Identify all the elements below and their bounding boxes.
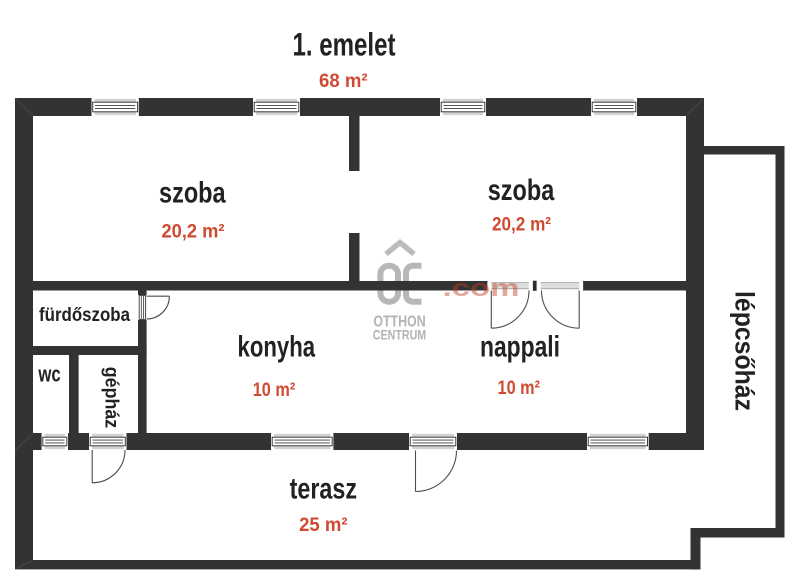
svg-text:1. emelet: 1. emelet — [293, 27, 396, 63]
svg-text:CENTRUM: CENTRUM — [373, 327, 426, 343]
svg-text:25 m²: 25 m² — [299, 514, 348, 536]
svg-text:10 m²: 10 m² — [253, 379, 296, 401]
svg-text:lépcsőház: lépcsőház — [730, 291, 760, 411]
svg-text:fürdőszoba: fürdőszoba — [39, 305, 130, 326]
svg-text:konyha: konyha — [238, 331, 316, 364]
svg-text:20,2 m²: 20,2 m² — [492, 214, 551, 236]
svg-text:gépház: gépház — [100, 367, 122, 429]
svg-text:nappali: nappali — [480, 331, 560, 364]
svg-text:20,2 m²: 20,2 m² — [162, 220, 225, 242]
svg-text:szoba: szoba — [159, 177, 226, 210]
svg-text:szoba: szoba — [488, 174, 555, 207]
svg-text:10 m²: 10 m² — [498, 377, 541, 399]
svg-text:68 m²: 68 m² — [319, 70, 368, 92]
svg-text:.com: .com — [443, 275, 520, 302]
svg-text:wc: wc — [38, 361, 61, 386]
svg-text:terasz: terasz — [290, 473, 357, 506]
